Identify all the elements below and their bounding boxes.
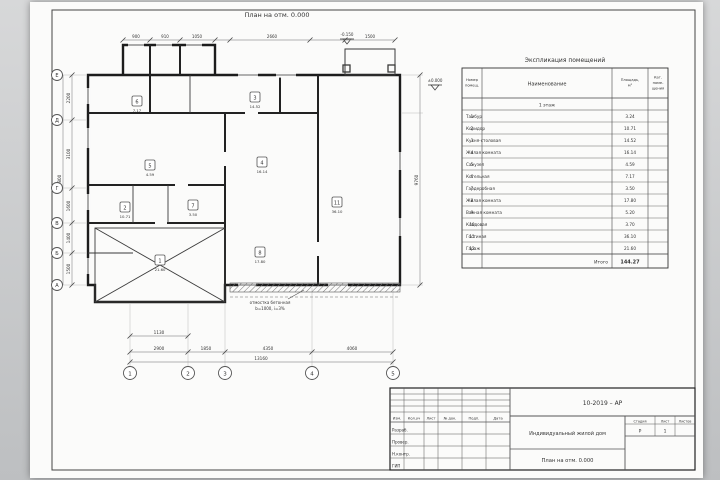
document-code: 10-2019 – АР [583, 400, 623, 407]
table-total-value: 144.27 [620, 260, 640, 266]
row-area: 14.52 [624, 138, 636, 143]
svg-text:1850: 1850 [201, 346, 212, 351]
row-area: 17.80 [624, 198, 636, 203]
svg-text:10.71: 10.71 [120, 214, 131, 219]
row-name: Гардеробная [466, 186, 495, 191]
axis-label: Б [55, 251, 59, 257]
axis-label: 3 [223, 371, 227, 377]
svg-text:4350: 4350 [263, 346, 274, 351]
drawing-canvas: План на отм. 0.000 [30, 2, 703, 478]
table-header: Номер помещ. Наименование Площадь, м² Ка… [465, 76, 664, 91]
plan-view-title: План на отм. 0.000 [244, 11, 309, 19]
stage-values: Р 1 [639, 429, 667, 435]
hatch-strip: отмостка бетонная b=1000, i=3% [230, 283, 400, 311]
dim-labels-left: 2200 3100 1600 1400 1500 [66, 92, 71, 274]
table-title: Экспликация помещений [525, 57, 606, 64]
row-name: Кладовая [466, 222, 488, 227]
row-area: 21.60 [624, 246, 636, 251]
svg-text:2200: 2200 [66, 92, 71, 103]
row-name: Гараж [466, 246, 480, 251]
sheet-name: План на отм. 0.000 [542, 458, 594, 464]
svg-text:7: 7 [191, 204, 194, 210]
table-row: 12 Гараж 21.60 [462, 246, 668, 254]
svg-text:1050: 1050 [192, 34, 203, 39]
svg-text:поме-: поме- [653, 81, 664, 85]
svg-text:7.17: 7.17 [133, 108, 142, 113]
svg-text:Кат.: Кат. [654, 76, 662, 80]
title-block: Изм. Кол.уч Лист № док. Подп. Дата Разра… [390, 388, 695, 470]
row-name: Ванная комната [466, 210, 502, 215]
floor-plan: отмостка бетонная b=1000, i=3% ±0.000 -0… [52, 32, 443, 380]
room-marker: 1 21.60 [155, 255, 166, 272]
svg-text:2900: 2900 [154, 346, 165, 351]
drawing-sheet: План на отм. 0.000 [30, 2, 703, 478]
table-row: 5 Санузел 4.59 [462, 162, 668, 170]
table-section-label: 1 этаж [539, 103, 555, 109]
table-row: 1 Тамбур 3.24 [462, 114, 668, 122]
svg-text:Листов: Листов [679, 420, 692, 424]
door-openings [155, 110, 321, 256]
portico [343, 49, 395, 75]
table-total-label: Итого [594, 260, 608, 266]
dim-labels-top: 900 910 1050 2660 1500 [132, 34, 375, 39]
room-markers: 6 7.17 3 14.52 5 4.59 4 16.14 2 10.7 [120, 92, 343, 272]
extension-lines [63, 75, 423, 366]
svg-text:1500: 1500 [365, 34, 376, 39]
room-marker: 4 16.14 [257, 157, 268, 174]
row-name: Коридор [466, 126, 485, 131]
desktop-background: { "page": {"background":"#c6c8ca","paper… [0, 0, 720, 480]
axis-label: Е [55, 73, 58, 79]
svg-text:3: 3 [253, 96, 256, 102]
row-name: Жилая комната [466, 198, 501, 203]
axis-label: А [55, 283, 59, 289]
dim-extra: 1130 [154, 330, 165, 335]
axis-label: 1 [128, 371, 132, 377]
table-row: 9 Ванная комната 5.20 [462, 210, 668, 218]
row-area: 4.59 [625, 162, 635, 167]
svg-text:3.50: 3.50 [189, 212, 198, 217]
row-area: 10.71 [624, 126, 636, 131]
svg-text:Номер: Номер [466, 78, 479, 82]
room-marker: 7 3.50 [188, 200, 198, 217]
svg-text:910: 910 [161, 34, 169, 39]
svg-text:4.59: 4.59 [146, 172, 155, 177]
room-marker: 5 4.59 [145, 160, 155, 177]
row-name: Гостиная [466, 234, 487, 239]
room-marker: 2 10.71 [120, 202, 131, 219]
svg-text:14.52: 14.52 [250, 104, 261, 109]
project-name: Индивидуальный жилой дом [529, 430, 606, 437]
table-row: 2 Коридор 10.71 [462, 126, 668, 134]
table-row: 3 Кухня-столовая 14.52 [462, 138, 668, 146]
svg-text:Р: Р [639, 429, 642, 435]
svg-text:8: 8 [258, 251, 261, 257]
svg-text:6: 6 [135, 100, 138, 106]
svg-text:Кол.уч: Кол.уч [408, 417, 420, 421]
row-name: Котельная [466, 174, 490, 179]
row-area: 5.20 [625, 210, 635, 215]
svg-text:11: 11 [334, 201, 340, 207]
svg-text:№ док.: № док. [444, 417, 457, 421]
svg-text:Стадия: Стадия [633, 420, 646, 424]
svg-text:Н.контр.: Н.контр. [392, 452, 410, 457]
svg-text:м²: м² [628, 84, 633, 88]
svg-text:Лист: Лист [661, 420, 670, 424]
table-row: 11 Гостиная 36.10 [462, 234, 668, 242]
svg-text:21.60: 21.60 [155, 267, 166, 272]
walls [88, 45, 400, 302]
axis-label: 5 [391, 371, 395, 377]
svg-text:5: 5 [148, 164, 151, 170]
room-marker: 11 36.10 [332, 197, 343, 214]
svg-text:ГИП: ГИП [392, 464, 400, 469]
axis-label: Г [55, 186, 58, 192]
dim-labels-bottom: 2900 1850 4350 4060 [154, 346, 358, 351]
row-area: 36.10 [624, 234, 636, 239]
svg-text:4: 4 [260, 161, 263, 167]
svg-text:Подп.: Подп. [469, 417, 480, 421]
svg-text:900: 900 [132, 34, 140, 39]
row-area: 16.14 [624, 150, 636, 155]
row-area: 3.70 [625, 222, 635, 227]
windows [85, 42, 402, 287]
svg-text:Лист: Лист [426, 417, 435, 421]
dim-overall-bottom: 13160 [254, 356, 268, 361]
explication-table: Экспликация помещений Номер помещ. Наиме… [462, 57, 668, 268]
svg-text:17.80: 17.80 [255, 259, 266, 264]
svg-text:4060: 4060 [347, 346, 358, 351]
svg-text:1400: 1400 [66, 232, 71, 243]
dim-overall-right: 9760 [414, 174, 419, 185]
row-name: Тамбур [465, 114, 482, 119]
stage-header: Стадия Лист Листов [633, 420, 691, 424]
svg-text:Разраб.: Разраб. [392, 428, 408, 433]
axis-label: 4 [310, 371, 314, 377]
svg-text:1: 1 [158, 259, 161, 265]
table-rows: 1 Тамбур 3.24 2 Коридор 10.71 3 Кухня-ст… [462, 114, 668, 254]
table-row: 10 Кладовая 3.70 [462, 222, 668, 230]
svg-text:1: 1 [664, 429, 667, 435]
room-marker: 8 17.80 [255, 247, 266, 264]
svg-text:3100: 3100 [66, 148, 71, 159]
dimensions: 900 910 1050 2660 1500 2900 1850 4350 40… [57, 34, 423, 365]
svg-text:Наименование: Наименование [528, 82, 567, 88]
bay-wall [123, 45, 215, 75]
svg-text:Изм.: Изм. [393, 417, 401, 421]
table-row: 8 Жилая комната 17.80 [462, 198, 668, 206]
row-area: 7.17 [625, 174, 635, 179]
axis-label: 2 [186, 371, 190, 377]
level-mark-1: -0.150 [341, 32, 354, 37]
room-marker: 3 14.52 [250, 92, 261, 109]
level-mark-0: ±0.000 [428, 78, 443, 83]
note-line-1: отмостка бетонная [250, 300, 291, 305]
svg-text:Провер.: Провер. [392, 440, 409, 445]
svg-text:Площадь,: Площадь, [621, 78, 640, 82]
svg-text:16.14: 16.14 [257, 169, 268, 174]
axis-bubbles-bottom: 1 2 3 4 5 [124, 367, 400, 380]
title-block-roles: Разраб. Провер. Н.контр. ГИП [392, 428, 410, 469]
svg-text:Дата: Дата [493, 417, 502, 421]
row-name: Жилая комната [466, 150, 501, 155]
table-row: 4 Жилая комната 16.14 [462, 150, 668, 158]
row-name: Санузел [466, 162, 485, 167]
inner-walls [88, 45, 318, 285]
svg-text:1600: 1600 [66, 200, 71, 211]
table-row: 6 Котельная 7.17 [462, 174, 668, 182]
svg-text:помещ.: помещ. [465, 84, 479, 88]
svg-text:щения: щения [652, 87, 664, 91]
table-row: 7 Гардеробная 3.50 [462, 186, 668, 194]
room-marker: 6 7.17 [132, 96, 142, 113]
svg-text:36.10: 36.10 [332, 209, 343, 214]
svg-text:2660: 2660 [267, 34, 278, 39]
row-area: 3.24 [625, 114, 635, 119]
row-area: 3.50 [625, 186, 635, 191]
axis-label: Д [55, 118, 59, 124]
row-name: Кухня-столовая [466, 138, 501, 143]
note-line-2: b=1000, i=3% [255, 306, 285, 311]
axis-label: В [55, 221, 59, 227]
svg-text:1500: 1500 [66, 263, 71, 274]
svg-text:2: 2 [123, 206, 126, 212]
